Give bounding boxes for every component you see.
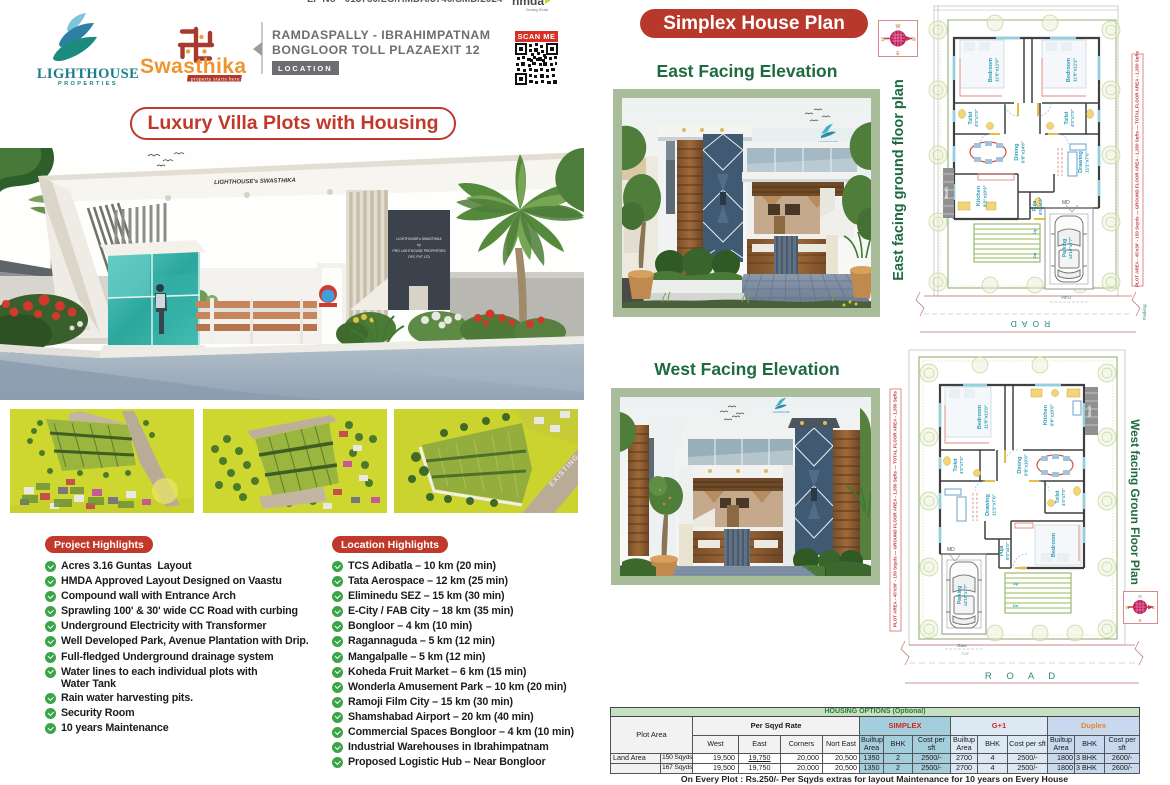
svg-text:Wash: Wash: [944, 187, 949, 199]
svg-text:Gate: Gate: [957, 643, 967, 648]
svg-text:Bedroom: Bedroom: [1051, 533, 1057, 557]
svg-text:4'0"x7'0": 4'0"x7'0": [1070, 109, 1075, 127]
svg-text:Wash: Wash: [1087, 405, 1092, 417]
svg-text:11'2"x7'0": 11'2"x7'0": [992, 494, 997, 516]
svg-text:Dining: Dining: [1014, 143, 1020, 160]
svg-text:Swasthika: Swasthika: [140, 55, 246, 78]
svg-text:PLOT AREA - 45'x30' - 150 Sqyd: PLOT AREA - 45'x30' - 150 Sqyds --- GROU…: [893, 391, 898, 627]
svg-text:Bedroom: Bedroom: [977, 405, 983, 429]
svg-text:Kitchen: Kitchen: [976, 185, 982, 206]
svg-text:Up: Up: [1013, 581, 1019, 586]
svg-text:14'10"x7'7": 14'10"x7'7": [963, 584, 968, 606]
svg-text:LIGHTHOUSE's SWASTHIKA: LIGHTHOUSE's SWASTHIKA: [396, 237, 442, 241]
svg-text:Parking: Parking: [1142, 304, 1147, 320]
svg-text:LIGHTHOUSE: LIGHTHOUSE: [773, 410, 790, 414]
svg-text:Up: Up: [1032, 228, 1037, 234]
svg-text:Drawing: Drawing: [985, 494, 991, 516]
svg-text:by: by: [417, 243, 421, 247]
svg-text:S: S: [1138, 618, 1141, 623]
svg-text:11'8"x11'0": 11'8"x11'0": [995, 58, 1000, 82]
svg-text:11'8"x11'0": 11'8"x11'0": [984, 405, 989, 429]
svg-text:11'8"x11'2": 11'8"x11'2": [1073, 58, 1078, 82]
svg-text:East facing ground floor plan: East facing ground floor plan: [891, 79, 907, 280]
svg-text:14'10"x7'7": 14'10"x7'7": [1068, 237, 1073, 259]
svg-text:PRO LIGHTHOUSE PROPERTIES: PRO LIGHTHOUSE PROPERTIES: [392, 249, 446, 253]
svg-text:4'0"x7'0": 4'0"x7'0": [959, 456, 964, 474]
svg-text:6'0"x14'6": 6'0"x14'6": [1021, 141, 1026, 163]
svg-text:4'0"x7'0": 4'0"x7'0": [1061, 488, 1066, 506]
svg-text:West facing Groun Floor Plan: West facing Groun Floor Plan: [1128, 419, 1142, 585]
svg-text:11'2"x7'0": 11'2"x7'0": [1085, 151, 1090, 173]
svg-text:Drawing: Drawing: [1078, 151, 1084, 173]
svg-text:N: N: [1138, 594, 1141, 599]
svg-text:4'0"x7'0": 4'0"x7'0": [974, 109, 979, 127]
svg-text:Dn: Dn: [1032, 252, 1037, 258]
svg-text:Kitchen: Kitchen: [1043, 404, 1049, 425]
svg-text:Bedroom: Bedroom: [1066, 58, 1072, 82]
svg-text:PROPERTIES: PROPERTIES: [58, 81, 118, 85]
svg-text:hmda: hmda: [512, 0, 544, 8]
svg-text:R O A D: R O A D: [985, 671, 1061, 682]
svg-text:6'0"x10'0": 6'0"x10'0": [1024, 454, 1029, 476]
svg-text:8'2"x10'0": 8'2"x10'0": [983, 185, 988, 207]
svg-text:8'0"x10'0": 8'0"x10'0": [1050, 404, 1055, 426]
svg-text:LIGHTHOUSE: LIGHTHOUSE: [37, 66, 139, 82]
svg-text:MD: MD: [947, 547, 955, 553]
svg-text:7'10": 7'10": [961, 652, 970, 656]
svg-text:OPC PVT LTD: OPC PVT LTD: [408, 255, 430, 259]
svg-text:ROAD: ROAD: [1006, 319, 1051, 329]
svg-text:Bedroom: Bedroom: [988, 58, 994, 82]
svg-text:6'0"x4'0": 6'0"x4'0": [1038, 197, 1043, 215]
svg-text:Growing Global: Growing Global: [526, 8, 548, 12]
svg-text:property starts here: property starts here: [191, 77, 240, 82]
svg-text:6'0"x4'0": 6'0"x4'0": [1005, 542, 1010, 560]
svg-text:PLOT AREA - 45'x30' - 150 Sqyd: PLOT AREA - 45'x30' - 150 Sqyds --- GROU…: [1135, 51, 1140, 287]
svg-text:Dn: Dn: [1013, 603, 1019, 608]
svg-text:Dining: Dining: [1017, 456, 1023, 473]
